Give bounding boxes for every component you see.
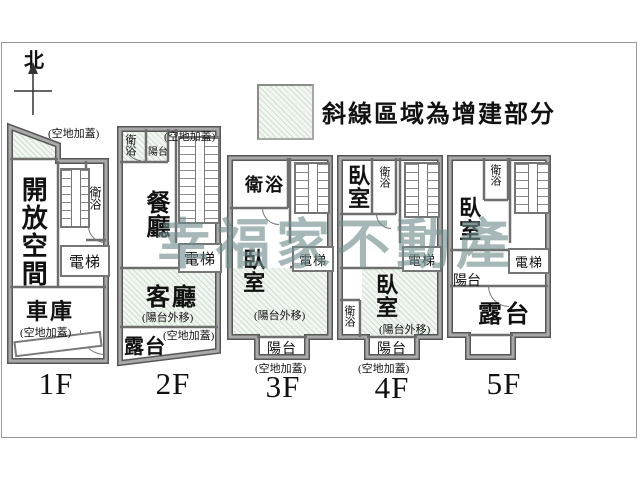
room-1f-bath: 衛浴 bbox=[89, 186, 101, 210]
floor-label-3f: 3F bbox=[255, 369, 311, 405]
room-2f-terrace: 露台 bbox=[124, 330, 166, 359]
elevator-1f: 電梯 bbox=[60, 245, 110, 277]
stairs-1f bbox=[60, 168, 90, 228]
room-4f-bedroom-rear: 臥室 bbox=[374, 273, 397, 319]
room-4f-bath-front: 衛浴 bbox=[378, 166, 389, 188]
room-2f-bath: 衛浴 bbox=[124, 134, 135, 156]
room-5f-terrace: 露台 bbox=[478, 294, 532, 329]
note-2f-ground: (空地加蓋) bbox=[163, 327, 214, 343]
floor-label-2f: 2F bbox=[145, 366, 201, 402]
room-3f-bath: 衛浴 bbox=[245, 171, 285, 197]
room-4f-balcony: 陽台 bbox=[368, 340, 416, 356]
watermark-text: 幸福家不動產 bbox=[156, 200, 516, 279]
note-2f-top: (空地加蓋) bbox=[164, 128, 215, 144]
note-1f-bottom: (空地加蓋) bbox=[20, 324, 71, 340]
north-arrow-icon bbox=[10, 60, 60, 120]
elevator-5f-label: 電梯 bbox=[515, 252, 543, 271]
note-1f-top: (空地加蓋) bbox=[48, 125, 99, 141]
elevator-1f-label: 電梯 bbox=[69, 251, 101, 272]
room-2f-living: 客廳 bbox=[146, 277, 198, 312]
room-2f-front-balcony: 陽台 bbox=[148, 143, 168, 158]
room-1f-garage: 車庫 bbox=[26, 294, 74, 326]
note-3f-balcony-moved: (陽台外移) bbox=[254, 307, 305, 323]
floor-label-4f: 4F bbox=[364, 370, 420, 406]
room-5f-bath: 衛浴 bbox=[489, 164, 500, 186]
room-4f-bath-rear: 衛浴 bbox=[343, 305, 354, 327]
legend-text: 斜線區域為增建部分 bbox=[322, 94, 556, 129]
room-1f-open-space: 開放空間 bbox=[19, 176, 46, 288]
room-3f-balcony: 陽台 bbox=[258, 340, 306, 356]
stairs-5f bbox=[514, 162, 550, 214]
floor-label-5f: 5F bbox=[476, 366, 532, 402]
floor-label-1f: 1F bbox=[28, 366, 84, 402]
note-4f-balcony-moved: (陽台外移) bbox=[379, 321, 430, 337]
note-2f-balcony-moved: (陽台外移) bbox=[142, 309, 193, 325]
legend-hatch-swatch bbox=[257, 84, 314, 140]
floorplan-image: 北 斜線區域為增建部分 bbox=[0, 0, 640, 480]
